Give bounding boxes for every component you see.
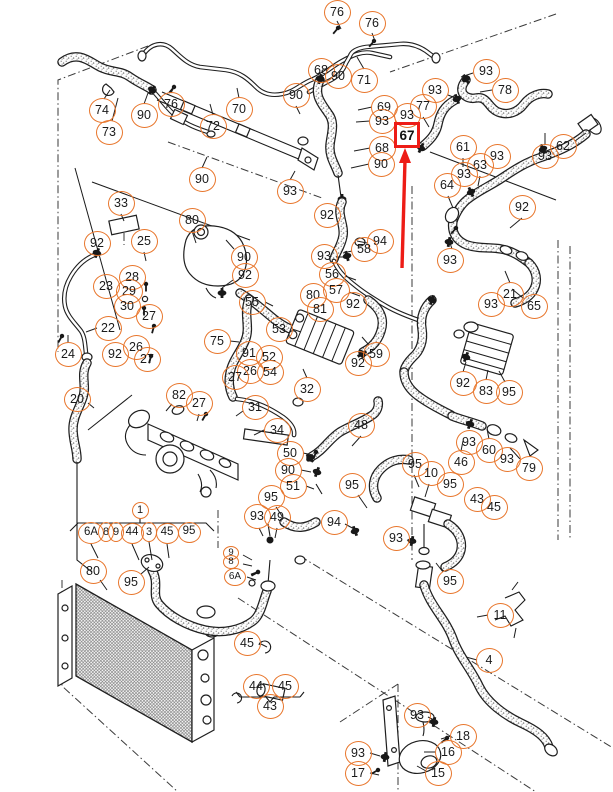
callout-90[interactable]: 90 — [131, 103, 158, 128]
callout-72[interactable]: 72 — [200, 114, 227, 139]
callout-80[interactable]: 80 — [179, 208, 206, 233]
callout-93[interactable]: 93 — [478, 292, 505, 317]
callout-27[interactable]: 27 — [186, 391, 213, 416]
callout-92[interactable]: 92 — [232, 263, 259, 288]
callout-94[interactable]: 94 — [321, 510, 348, 535]
oil-cooler-right — [454, 322, 514, 375]
parts-diagram-canvas: 7473907670729090937676689071937769939368… — [0, 0, 613, 792]
callout-95[interactable]: 95 — [339, 473, 366, 498]
radiator — [58, 584, 219, 742]
highlighted-callout-67[interactable]: 67 — [394, 122, 420, 148]
callout-64[interactable]: 64 — [434, 173, 461, 198]
callout-92[interactable]: 92 — [102, 342, 129, 367]
callout-93[interactable]: 93 — [473, 59, 500, 84]
callout-11[interactable]: 11 — [487, 603, 514, 628]
callout-43[interactable]: 43 — [257, 694, 284, 719]
callout-90[interactable]: 90 — [283, 83, 310, 108]
callout-79[interactable]: 79 — [516, 456, 543, 481]
callout-49[interactable]: 49 — [264, 505, 291, 530]
callout-92[interactable]: 92 — [84, 231, 111, 256]
callout-8[interactable]: 8 — [223, 555, 239, 569]
callout-95[interactable]: 95 — [496, 380, 523, 405]
callout-54[interactable]: 54 — [257, 360, 284, 385]
callout-70[interactable]: 70 — [226, 97, 253, 122]
callout-92[interactable]: 92 — [340, 292, 367, 317]
callout-95[interactable]: 95 — [437, 472, 464, 497]
callout-25[interactable]: 25 — [131, 229, 158, 254]
callout-92[interactable]: 92 — [345, 351, 372, 376]
callout-53[interactable]: 53 — [266, 317, 293, 342]
callout-95[interactable]: 95 — [178, 522, 201, 543]
engine-turbo — [125, 404, 238, 497]
callout-90[interactable]: 90 — [189, 167, 216, 192]
callout-23[interactable]: 23 — [93, 274, 120, 299]
callout-27[interactable]: 27 — [222, 365, 249, 390]
callout-20[interactable]: 20 — [64, 387, 91, 412]
callout-55[interactable]: 55 — [239, 290, 266, 315]
highlight-arrow — [399, 148, 411, 268]
callout-24[interactable]: 24 — [55, 342, 82, 367]
callout-58[interactable]: 58 — [351, 237, 378, 262]
callout-22[interactable]: 22 — [95, 316, 122, 341]
callout-78[interactable]: 78 — [492, 78, 519, 103]
callout-46[interactable]: 46 — [448, 450, 475, 475]
callout-75[interactable]: 75 — [204, 329, 231, 354]
callout-92[interactable]: 92 — [314, 203, 341, 228]
lower-radiator-hose — [139, 552, 275, 632]
callout-3[interactable]: 3 — [141, 522, 157, 542]
callout-93[interactable]: 93 — [277, 179, 304, 204]
callout-45[interactable]: 45 — [234, 631, 261, 656]
callout-17[interactable]: 17 — [345, 761, 372, 786]
clip-45 — [259, 641, 271, 653]
callout-27[interactable]: 27 — [134, 347, 161, 372]
callout-34[interactable]: 34 — [264, 418, 291, 443]
callout-45[interactable]: 45 — [481, 495, 508, 520]
callout-31[interactable]: 31 — [242, 395, 269, 420]
callout-48[interactable]: 48 — [348, 413, 375, 438]
callout-45[interactable]: 45 — [156, 523, 179, 544]
callout-15[interactable]: 15 — [425, 761, 452, 786]
callout-76[interactable]: 76 — [324, 0, 351, 25]
callout-4[interactable]: 4 — [476, 648, 503, 673]
callout-74[interactable]: 74 — [89, 98, 116, 123]
callout-92[interactable]: 92 — [509, 195, 536, 220]
callout-81[interactable]: 81 — [307, 297, 334, 322]
callout-93[interactable]: 93 — [437, 248, 464, 273]
callout-27[interactable]: 27 — [136, 304, 163, 329]
clamp-74 — [103, 84, 114, 95]
callout-80[interactable]: 80 — [80, 559, 107, 584]
callout-93[interactable]: 93 — [369, 109, 396, 134]
callout-90[interactable]: 90 — [368, 152, 395, 177]
callout-90[interactable]: 90 — [325, 64, 352, 89]
callout-65[interactable]: 65 — [521, 294, 548, 319]
oring-44 — [232, 693, 242, 703]
callout-71[interactable]: 71 — [351, 68, 378, 93]
callout-6A[interactable]: 6A — [224, 568, 246, 586]
callout-76[interactable]: 76 — [158, 92, 185, 117]
callout-33[interactable]: 33 — [108, 191, 135, 216]
callout-93[interactable]: 93 — [383, 526, 410, 551]
callout-95[interactable]: 95 — [118, 570, 145, 595]
heater-hoses — [303, 294, 538, 465]
callout-73[interactable]: 73 — [96, 120, 123, 145]
callout-95[interactable]: 95 — [437, 569, 464, 594]
callout-62[interactable]: 62 — [550, 134, 577, 159]
callout-76[interactable]: 76 — [359, 11, 386, 36]
part-79 — [524, 440, 538, 456]
callout-1[interactable]: 1 — [132, 502, 149, 519]
callout-32[interactable]: 32 — [294, 377, 321, 402]
callout-93[interactable]: 93 — [404, 703, 431, 728]
